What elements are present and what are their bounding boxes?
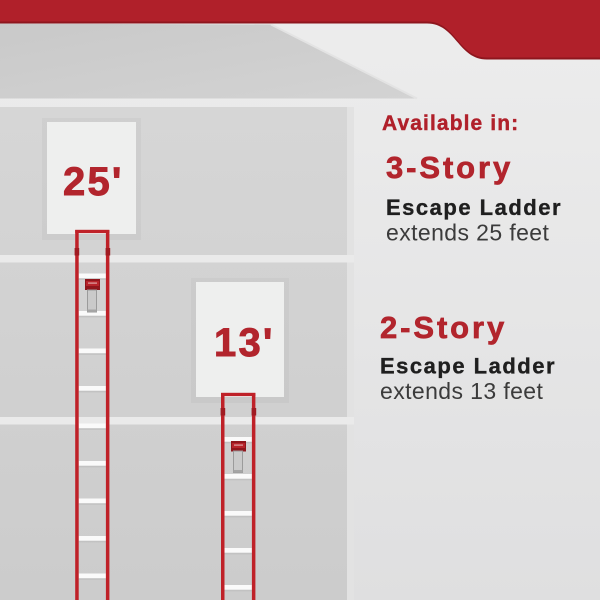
svg-text:25': 25' bbox=[63, 160, 124, 204]
svg-text:extends 13 feet: extends 13 feet bbox=[380, 378, 543, 404]
svg-text:Escape Ladder: Escape Ladder bbox=[386, 195, 562, 220]
svg-text:3-Story: 3-Story bbox=[386, 150, 513, 185]
svg-text:Escape Ladder: Escape Ladder bbox=[380, 354, 556, 379]
svg-text:2-Story: 2-Story bbox=[380, 310, 507, 345]
svg-text:Available in:: Available in: bbox=[382, 112, 519, 135]
svg-text:extends 25 feet: extends 25 feet bbox=[386, 220, 549, 246]
svg-text:13': 13' bbox=[214, 321, 275, 365]
